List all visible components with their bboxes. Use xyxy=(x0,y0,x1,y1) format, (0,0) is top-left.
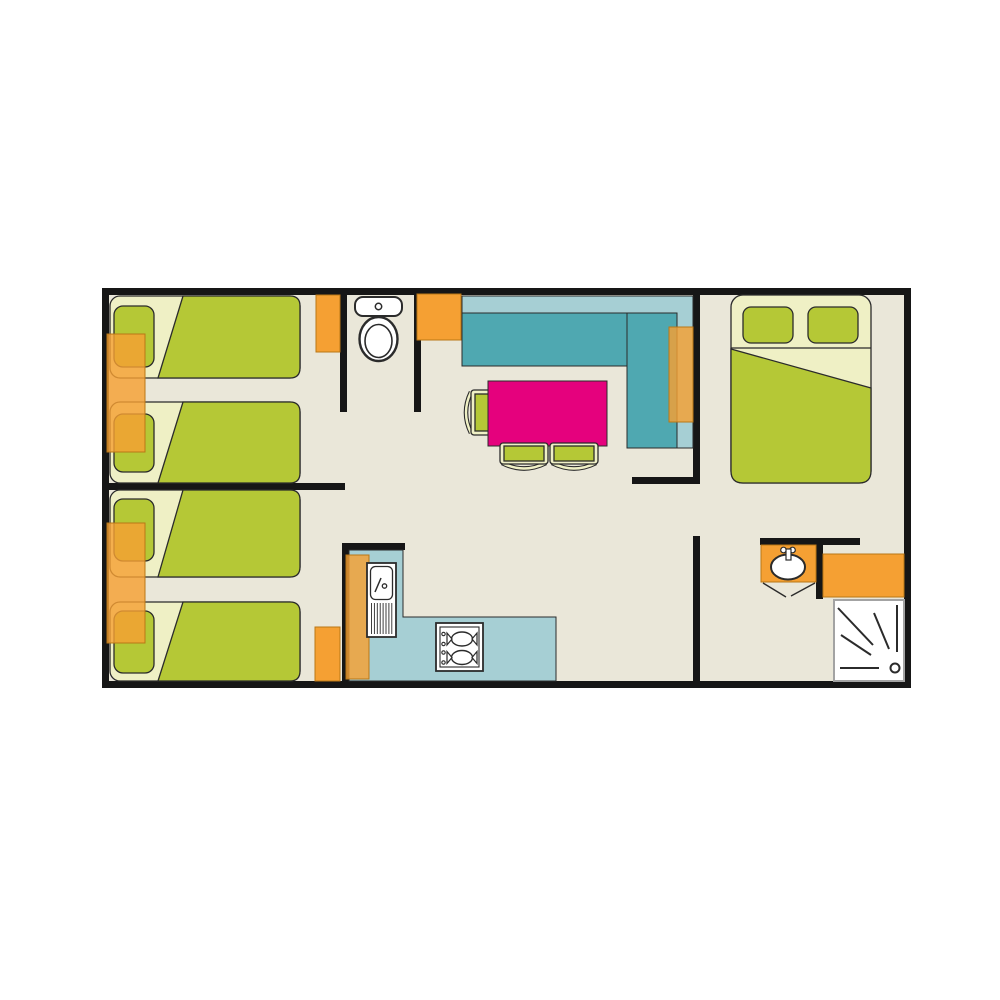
sofa-side-panel xyxy=(669,327,693,422)
single-bed-blanket xyxy=(158,402,300,483)
shower-drain xyxy=(891,664,900,673)
single-bed-blanket xyxy=(158,490,300,577)
wall-bedrooms-divider xyxy=(102,483,345,490)
chair-seat xyxy=(475,394,489,431)
single-bed-blanket xyxy=(158,296,300,378)
nightstand xyxy=(107,334,145,452)
floor-plan-canvas xyxy=(0,0,1000,1000)
toilet-bowl-inner xyxy=(365,325,392,358)
double-bed-pillow-left xyxy=(743,307,793,343)
sofa-seat-top xyxy=(462,313,627,366)
wall-bathroom-mid xyxy=(816,545,823,599)
wall-living-stub xyxy=(632,477,700,484)
single-bed-blanket xyxy=(158,602,300,681)
chair-seat xyxy=(504,446,544,461)
wall-bathroom-top xyxy=(760,538,860,545)
burner-ring xyxy=(452,632,473,646)
hob-knob xyxy=(442,651,445,654)
wardrobe xyxy=(316,295,340,352)
burner-ring xyxy=(452,651,473,665)
nightstand xyxy=(107,523,145,643)
toilet-button xyxy=(375,303,381,309)
kitchen-sink-basin xyxy=(371,567,393,600)
sideboard xyxy=(417,294,461,340)
dining-table xyxy=(488,381,607,446)
wall-bedroom-right xyxy=(693,295,700,484)
wall-wc-left xyxy=(340,295,347,412)
floor-plan xyxy=(0,0,1000,1000)
chair-seat xyxy=(554,446,594,461)
room-bedroom-double-right xyxy=(731,295,871,483)
kitchen-sink-tap-base xyxy=(382,584,386,588)
washbasin-tap-spout xyxy=(786,549,791,560)
wall-kitchen-top xyxy=(342,543,405,550)
hob-knob xyxy=(442,661,445,664)
bathroom-cabinet xyxy=(823,554,904,597)
room-wc xyxy=(355,297,402,361)
kitchen-tall-cabinet xyxy=(346,555,369,679)
wall-bathroom-left xyxy=(693,536,700,681)
hob-knob xyxy=(442,642,445,645)
hob-knob xyxy=(442,632,445,635)
double-bed-pillow-right xyxy=(808,307,858,343)
wardrobe xyxy=(315,627,340,681)
